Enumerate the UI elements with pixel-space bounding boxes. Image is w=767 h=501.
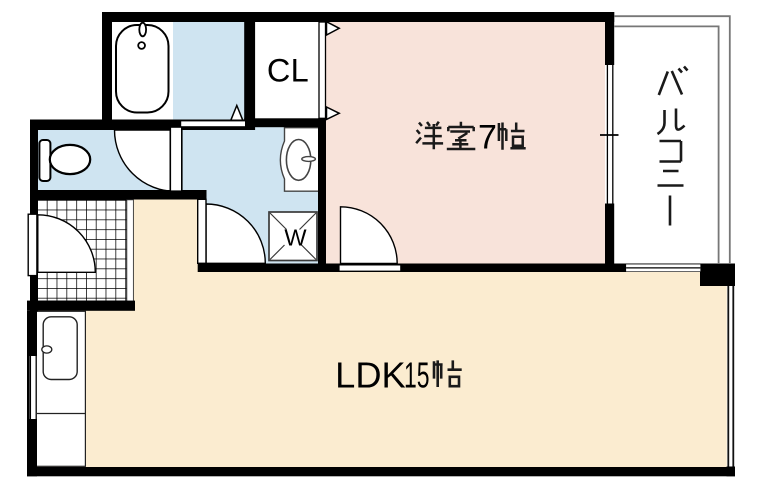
svg-text:CL: CL [267, 52, 309, 88]
svg-text:W: W [284, 225, 307, 251]
svg-text:15: 15 [404, 354, 430, 395]
svg-text:7: 7 [478, 118, 497, 156]
svg-text:LDK: LDK [335, 354, 406, 395]
